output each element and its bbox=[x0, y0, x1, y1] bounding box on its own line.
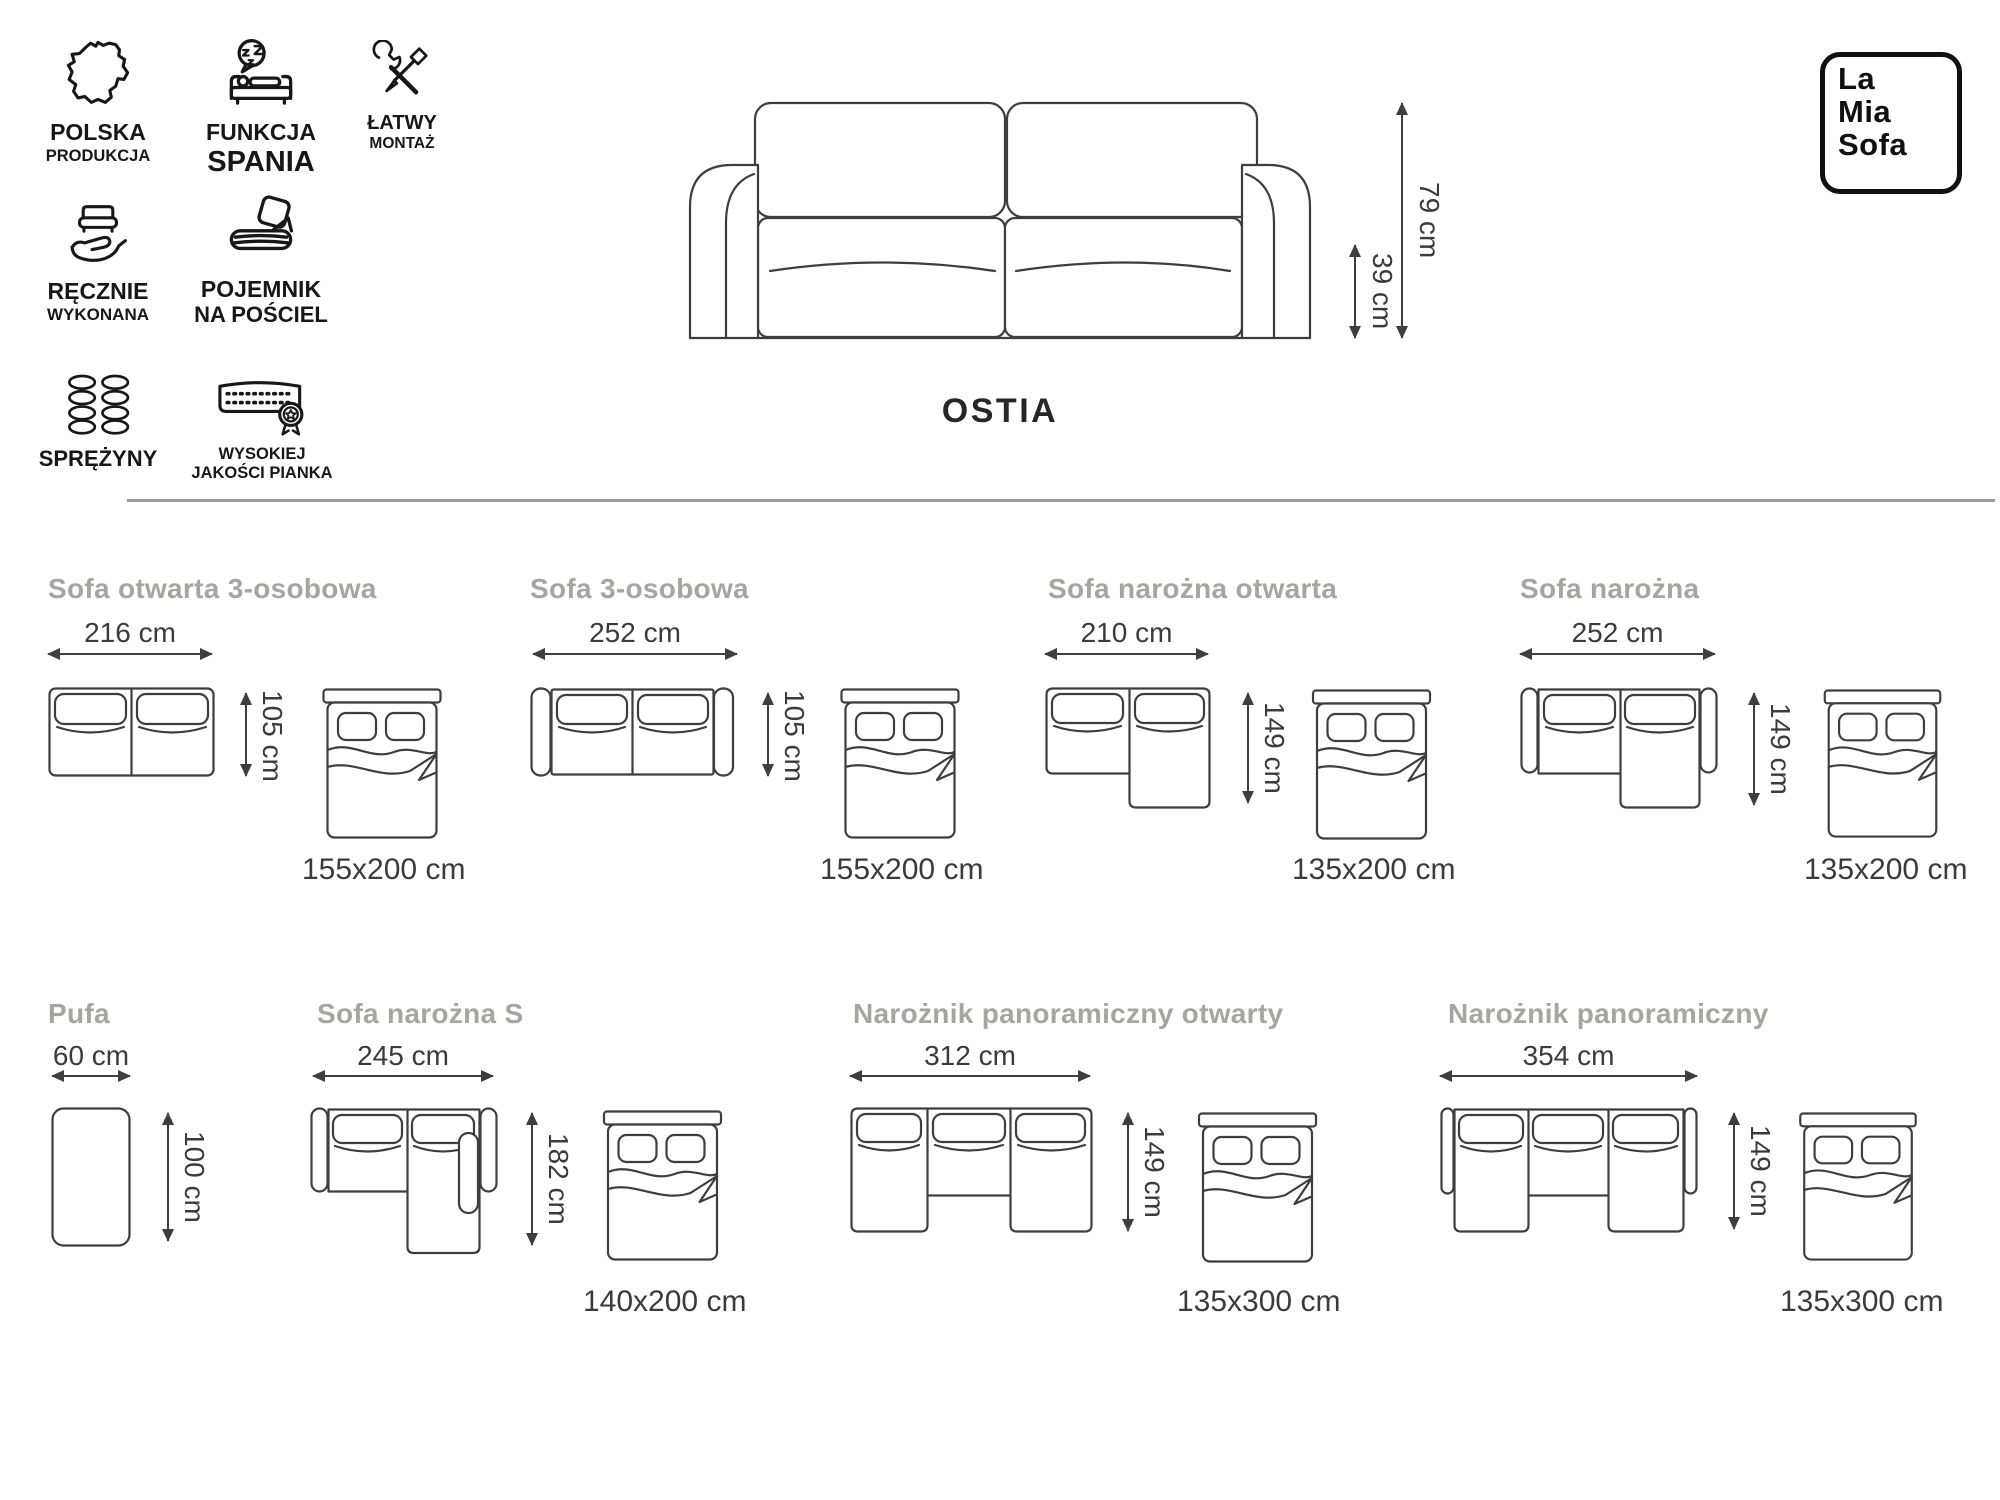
depth-arrow bbox=[1753, 693, 1755, 805]
seat-height-label: 39 cm bbox=[1366, 245, 1398, 338]
sofa-front-view-drawing bbox=[650, 95, 1350, 345]
feature-label: SPRĘŻYNY bbox=[39, 446, 158, 471]
brand-line-3: Sofa bbox=[1838, 129, 1957, 162]
brand-line-1: La bbox=[1838, 63, 1957, 96]
quality-foam-icon bbox=[214, 376, 310, 438]
depth-label: 149 cm bbox=[1138, 1113, 1170, 1231]
feature-label: POLSKA bbox=[50, 119, 146, 145]
variant-sofa-narozna-otwarta: Sofa narożna otwarta 210 cm 149 cm 135x2… bbox=[1040, 565, 1510, 900]
bedding-container-icon bbox=[220, 194, 302, 274]
feature-sprezyny: SPRĘŻYNY bbox=[18, 372, 178, 471]
feature-sublabel: WYKONANA bbox=[47, 305, 149, 325]
width-arrow bbox=[1045, 653, 1208, 655]
feature-label: WYSOKIEJ bbox=[218, 445, 305, 464]
sleep-function-icon bbox=[222, 36, 300, 114]
depth-label: 149 cm bbox=[1764, 693, 1796, 805]
width-label: 252 cm bbox=[533, 617, 737, 649]
handmade-icon bbox=[60, 200, 136, 274]
corner-sofa-plan-drawing bbox=[1045, 687, 1211, 809]
width-label: 216 cm bbox=[48, 617, 212, 649]
depth-label: 105 cm bbox=[778, 690, 810, 778]
feature-funkcja-spania: FUNKCJA SPANIA bbox=[176, 36, 346, 180]
depth-arrow bbox=[167, 1113, 169, 1241]
bed-top-view-icon bbox=[1310, 689, 1433, 841]
panoramic-corner-plan-drawing bbox=[850, 1107, 1093, 1233]
bed-size-label: 140x200 cm bbox=[583, 1285, 743, 1319]
bed-size-label: 155x200 cm bbox=[302, 853, 462, 887]
width-arrow bbox=[313, 1075, 493, 1077]
brand-line-2: Mia bbox=[1838, 96, 1957, 129]
variant-name: Narożnik panoramiczny bbox=[1448, 998, 1769, 1030]
bed-top-view-icon bbox=[322, 688, 442, 840]
feature-sublabel: JAKOŚCI PIANKA bbox=[191, 464, 332, 483]
bed-size-label: 135x300 cm bbox=[1780, 1285, 1940, 1319]
feature-label: FUNKCJA bbox=[206, 119, 316, 145]
feature-sublabel: NA POŚCIEL bbox=[194, 302, 328, 327]
width-arrow bbox=[533, 653, 737, 655]
width-arrow bbox=[52, 1075, 130, 1077]
variant-naroznik-panoramiczny-otwarty: Narożnik panoramiczny otwarty 312 cm 149… bbox=[845, 990, 1315, 1325]
bed-size-label: 135x200 cm bbox=[1804, 853, 1964, 887]
variant-name: Sofa narożna otwarta bbox=[1048, 573, 1337, 605]
feature-label: RĘCZNIE bbox=[48, 278, 149, 304]
variant-name: Sofa 3-osobowa bbox=[530, 573, 749, 605]
feature-wysokiej-jakosci-pianka: WYSOKIEJ JAKOŚCI PIANKA bbox=[162, 376, 362, 483]
variant-sofa-narozna: Sofa narożna 252 cm 149 cm 135x200 cm bbox=[1512, 565, 1982, 900]
bed-top-view-icon bbox=[1822, 689, 1943, 839]
width-label: 252 cm bbox=[1520, 617, 1715, 649]
feature-polska-produkcja: POLSKA PRODUKCJA bbox=[18, 36, 178, 166]
depth-arrow bbox=[1127, 1113, 1129, 1231]
sofa-plan-drawing bbox=[48, 687, 215, 777]
variant-name: Sofa narożna S bbox=[317, 998, 523, 1030]
width-arrow bbox=[1440, 1075, 1697, 1077]
variant-sofa-narozna-s: Sofa narożna S 245 cm 182 cm 140x200 cm bbox=[309, 990, 779, 1325]
width-label: 60 cm bbox=[52, 1040, 130, 1072]
sofa-plan-drawing bbox=[530, 687, 735, 777]
product-spec-sheet: POLSKA PRODUKCJA FUNKCJA SPANIA ŁATWY MO… bbox=[0, 0, 2000, 1500]
brand-logo: La Mia Sofa bbox=[1820, 52, 1962, 194]
easy-assembly-icon bbox=[370, 40, 434, 106]
poland-map-icon bbox=[61, 36, 135, 114]
feature-label: POJEMNIK bbox=[201, 276, 321, 302]
bed-top-view-icon bbox=[1798, 1112, 1918, 1262]
bed-size-label: 155x200 cm bbox=[820, 853, 980, 887]
width-arrow bbox=[48, 653, 212, 655]
depth-arrow bbox=[1733, 1113, 1735, 1229]
depth-arrow bbox=[767, 693, 769, 776]
total-height-arrow bbox=[1401, 103, 1403, 338]
feature-pojemnik-na-posciel: POJEMNIK NA POŚCIEL bbox=[176, 194, 346, 328]
depth-arrow bbox=[531, 1113, 533, 1245]
feature-sublabel: PRODUKCJA bbox=[46, 147, 151, 166]
bed-top-view-icon bbox=[602, 1110, 723, 1262]
bed-top-view-icon bbox=[1195, 1112, 1320, 1264]
bed-top-view-icon bbox=[840, 688, 960, 840]
depth-label: 182 cm bbox=[542, 1113, 574, 1245]
width-label: 312 cm bbox=[850, 1040, 1090, 1072]
variant-sofa-otwarta-3-osobowa: Sofa otwarta 3-osobowa 216 cm 105 cm 155… bbox=[40, 565, 510, 900]
feature-sublabel: SPANIA bbox=[207, 146, 314, 179]
pouf-plan-drawing bbox=[51, 1107, 131, 1247]
width-label: 354 cm bbox=[1440, 1040, 1697, 1072]
depth-arrow bbox=[1247, 693, 1249, 803]
bed-size-label: 135x200 cm bbox=[1292, 853, 1452, 887]
corner-sofa-s-plan-drawing bbox=[310, 1107, 498, 1255]
variant-name: Narożnik panoramiczny otwarty bbox=[853, 998, 1283, 1030]
springs-icon bbox=[63, 372, 133, 436]
width-arrow bbox=[850, 1075, 1090, 1077]
feature-recznie-wykonana: RĘCZNIE WYKONANA bbox=[18, 200, 178, 325]
bed-size-label: 135x300 cm bbox=[1177, 1285, 1337, 1319]
corner-sofa-plan-drawing bbox=[1520, 687, 1718, 809]
variant-naroznik-panoramiczny: Narożnik panoramiczny 354 cm 149 cm 135x… bbox=[1432, 990, 1902, 1325]
feature-latwy-montaz: ŁATWY MONTAŻ bbox=[332, 40, 472, 153]
width-arrow bbox=[1520, 653, 1715, 655]
variant-name: Sofa otwarta 3-osobowa bbox=[48, 573, 377, 605]
section-divider bbox=[127, 499, 1995, 502]
feature-label: ŁATWY bbox=[367, 112, 437, 135]
variant-name: Sofa narożna bbox=[1520, 573, 1699, 605]
depth-label: 149 cm bbox=[1258, 693, 1290, 803]
seat-height-arrow bbox=[1354, 245, 1356, 338]
variant-name: Pufa bbox=[48, 998, 110, 1030]
product-title: OSTIA bbox=[850, 392, 1150, 431]
panoramic-corner-plan-drawing bbox=[1440, 1107, 1698, 1233]
width-label: 210 cm bbox=[1045, 617, 1208, 649]
depth-label: 100 cm bbox=[178, 1113, 210, 1241]
total-height-label: 79 cm bbox=[1413, 103, 1445, 338]
width-label: 245 cm bbox=[313, 1040, 493, 1072]
depth-label: 105 cm bbox=[256, 690, 288, 778]
feature-sublabel: MONTAŻ bbox=[369, 135, 434, 153]
depth-label: 149 cm bbox=[1744, 1113, 1776, 1229]
variant-sofa-3-osobowa: Sofa 3-osobowa 252 cm 105 cm 155x200 cm bbox=[522, 565, 992, 900]
depth-arrow bbox=[245, 693, 247, 776]
